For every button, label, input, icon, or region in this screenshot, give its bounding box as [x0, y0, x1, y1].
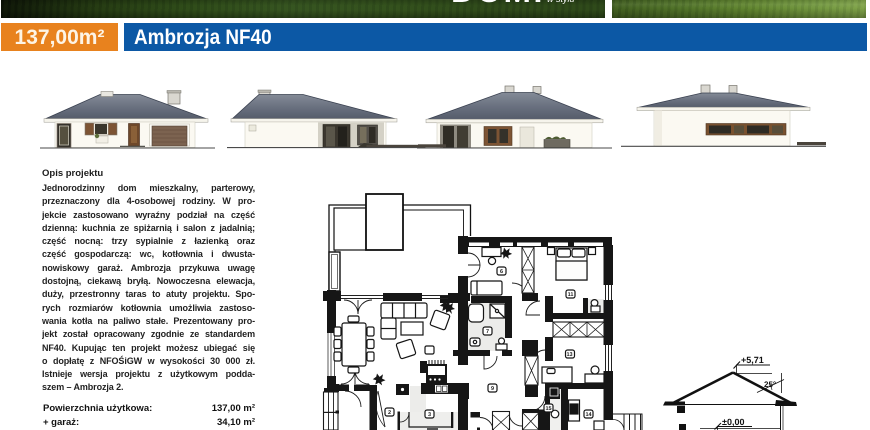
svg-text:+5,71: +5,71 — [741, 355, 764, 365]
svg-text:11: 11 — [568, 292, 574, 298]
svg-text:2: 2 — [388, 410, 391, 416]
svg-text:14: 14 — [585, 412, 592, 418]
svg-text:15: 15 — [545, 406, 551, 412]
svg-text:6: 6 — [500, 269, 503, 275]
svg-text:13: 13 — [566, 352, 572, 358]
svg-text:9: 9 — [491, 386, 494, 392]
svg-text:7: 7 — [486, 329, 489, 335]
svg-text:±0,00: ±0,00 — [722, 417, 744, 427]
svg-text:25°: 25° — [764, 380, 776, 389]
svg-text:3: 3 — [428, 412, 431, 418]
